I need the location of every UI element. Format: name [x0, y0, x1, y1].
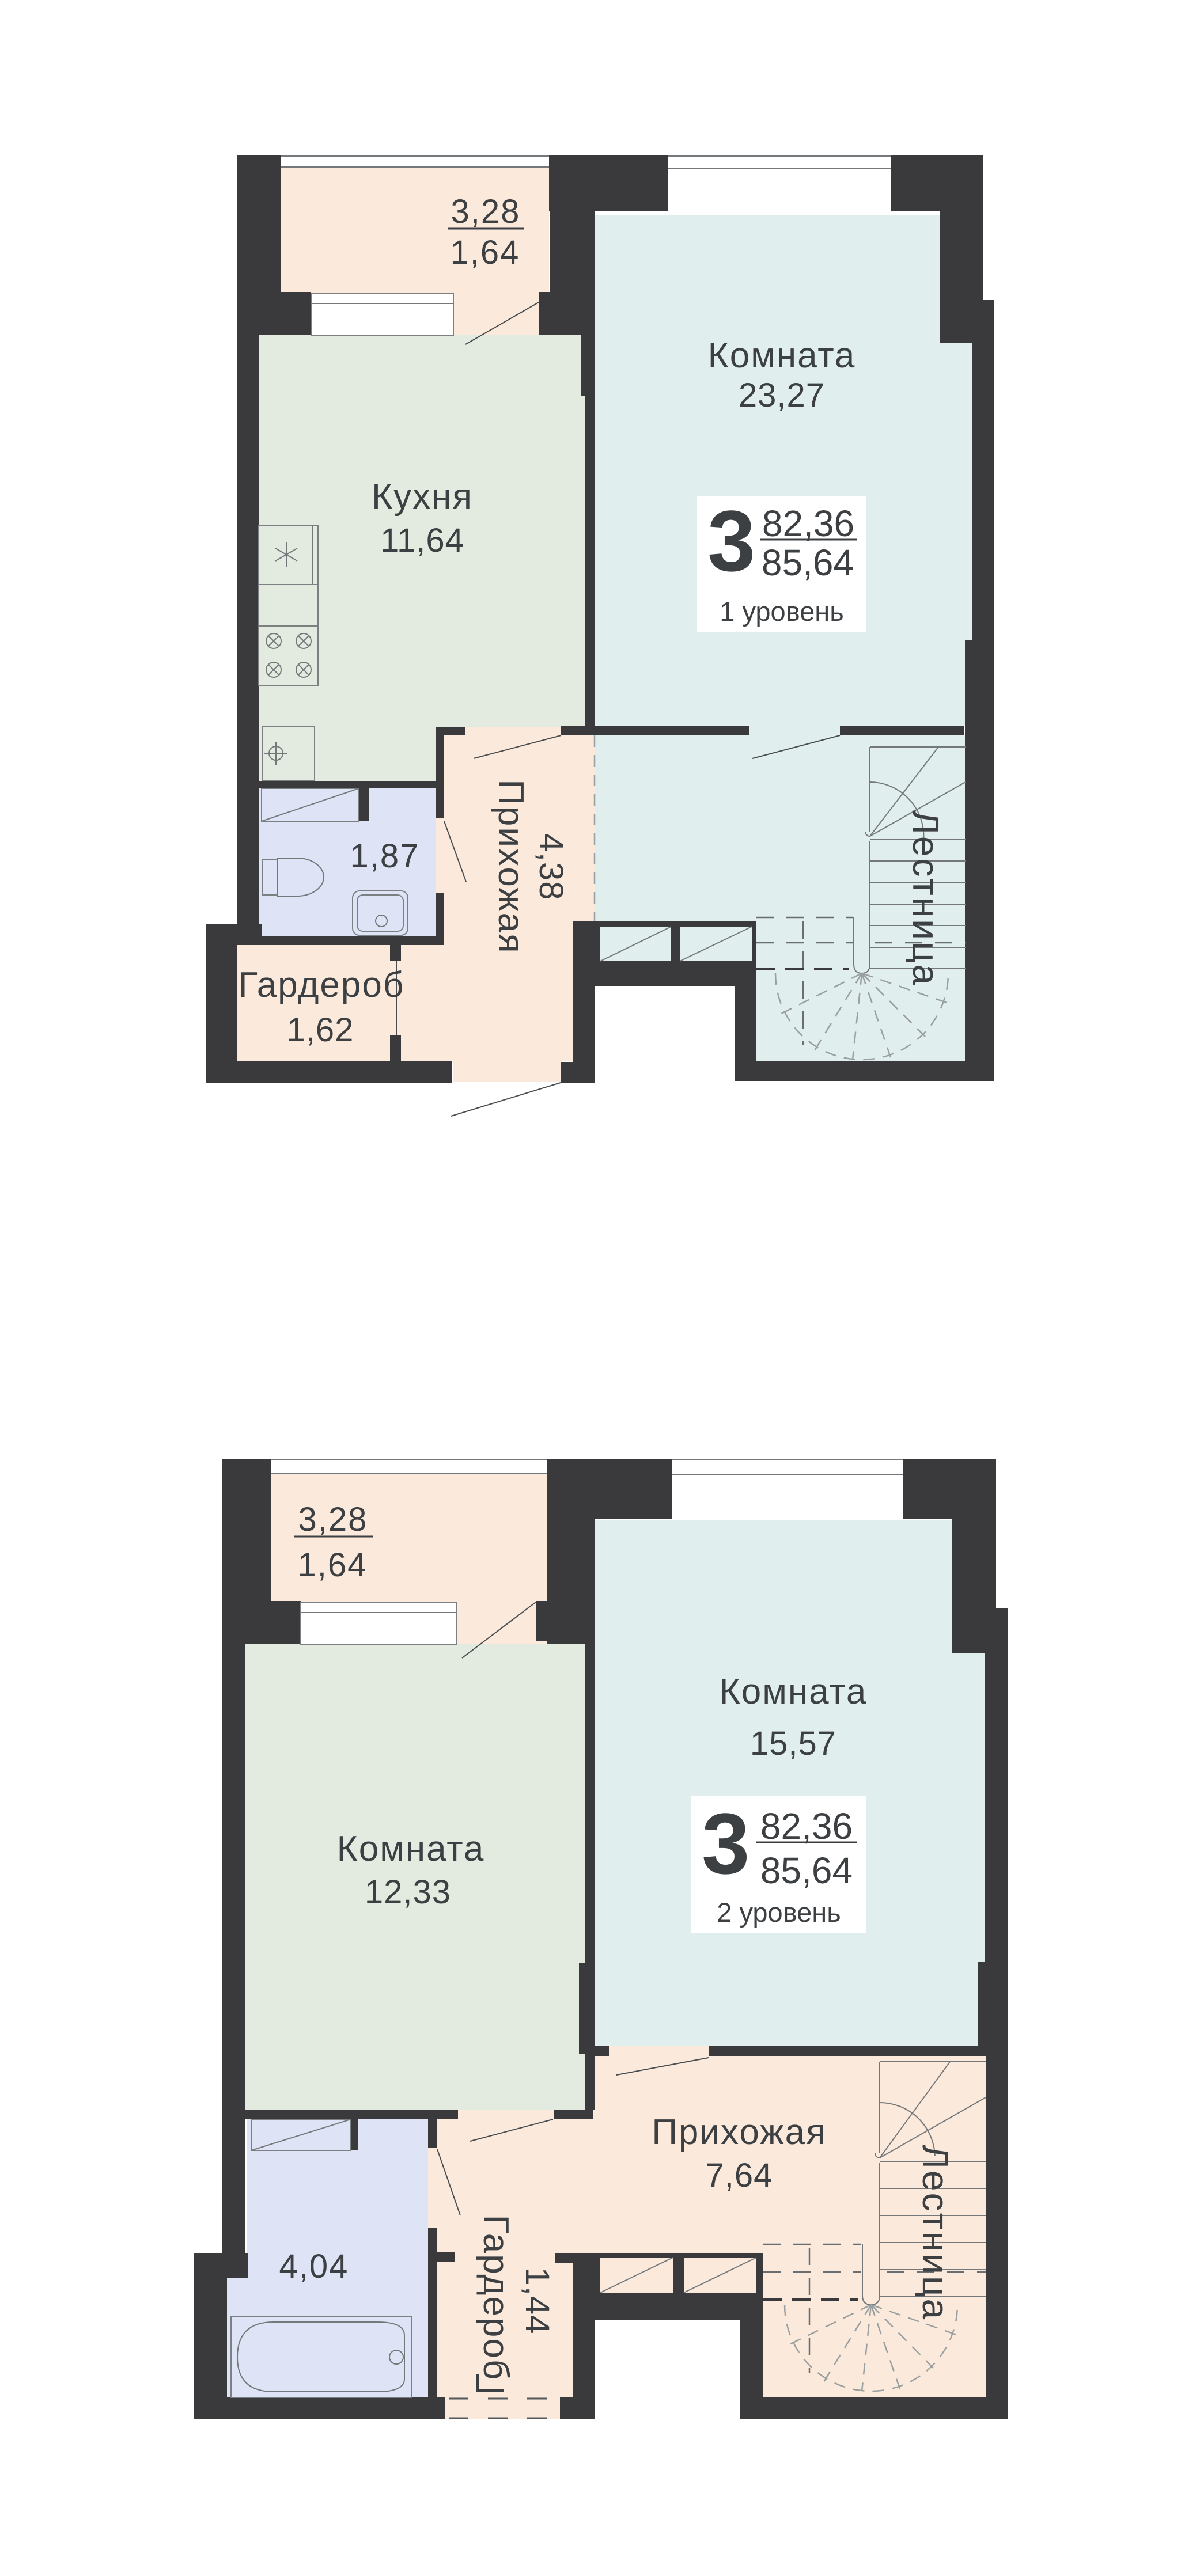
svg-text:3,28: 3,28 [298, 1501, 368, 1538]
svg-text:Прихожая: Прихожая [652, 2112, 826, 2152]
svg-text:Комната: Комната [708, 336, 856, 375]
svg-text:1,87: 1,87 [350, 837, 420, 875]
svg-text:Лестница: Лестница [905, 810, 947, 987]
svg-text:2 уровень: 2 уровень [717, 1897, 841, 1928]
svg-text:12,33: 12,33 [365, 1873, 451, 1911]
svg-text:Лестница: Лестница [915, 2145, 956, 2321]
svg-text:Комната: Комната [337, 1829, 485, 1869]
svg-text:3: 3 [702, 1795, 749, 1892]
svg-text:Гардероб: Гардероб [239, 965, 405, 1005]
svg-text:82,36: 82,36 [762, 503, 854, 544]
svg-text:1,62: 1,62 [287, 1011, 354, 1049]
svg-text:82,36: 82,36 [760, 1805, 853, 1847]
svg-text:3: 3 [707, 492, 755, 589]
svg-text:85,64: 85,64 [762, 542, 854, 583]
svg-text:Прихожая: Прихожая [491, 779, 531, 954]
svg-text:11,64: 11,64 [380, 522, 464, 559]
svg-text:23,27: 23,27 [739, 377, 825, 414]
svg-text:85,64: 85,64 [760, 1850, 853, 1891]
svg-text:4,04: 4,04 [279, 2248, 349, 2285]
svg-text:15,57: 15,57 [750, 1725, 836, 1762]
svg-text:1,44: 1,44 [518, 2267, 556, 2335]
svg-text:7,64: 7,64 [706, 2157, 773, 2194]
svg-text:1 уровень: 1 уровень [720, 596, 843, 627]
svg-text:Гардероб: Гардероб [476, 2215, 516, 2381]
svg-text:Кухня: Кухня [372, 477, 473, 517]
svg-text:1,64: 1,64 [451, 234, 520, 271]
svg-text:3,28: 3,28 [451, 193, 521, 230]
svg-text:1,64: 1,64 [298, 1546, 368, 1584]
svg-text:Комната: Комната [720, 1672, 868, 1712]
svg-text:4,38: 4,38 [532, 833, 570, 901]
